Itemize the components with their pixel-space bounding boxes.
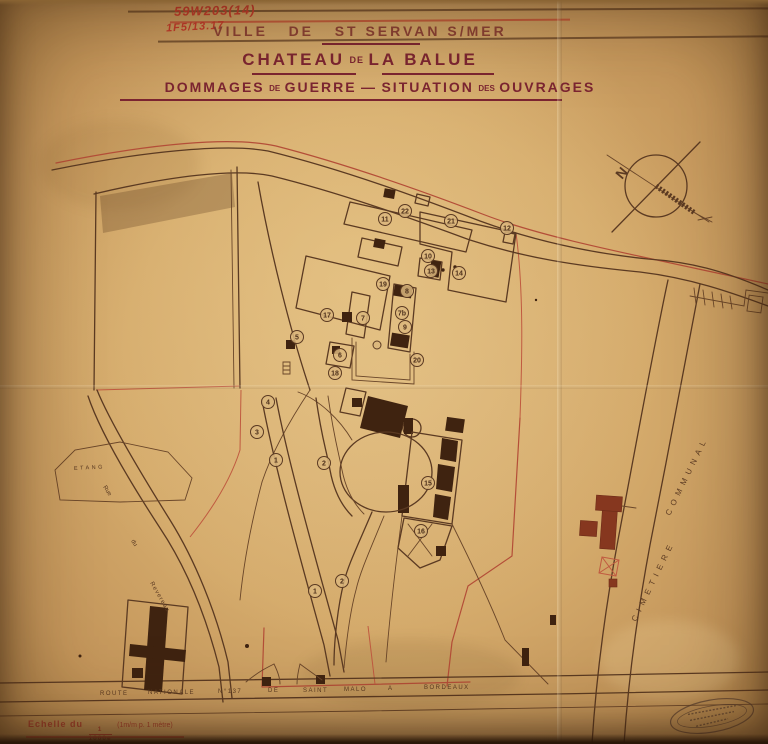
building-15-group — [398, 432, 462, 568]
ouvrage-marker-label: 19 — [379, 281, 387, 288]
route-word-1: NATIONALE — [148, 690, 195, 696]
ouvrage-marker-label: 13 — [427, 268, 435, 275]
photo-edge-top — [0, 0, 768, 5]
shaded-parcel — [100, 173, 235, 233]
central-outbuildings — [283, 256, 416, 384]
ouvrage-marker-label: 15 — [424, 480, 432, 487]
site-plan: N ETANG Rue du Revereau CIMETIERE COMMUN… — [0, 0, 768, 744]
ouvrage-marker-label: 21 — [447, 218, 455, 225]
route-word-0: ROUTE — [100, 691, 129, 697]
rue-label-1: Rue — [101, 485, 112, 498]
route-word-7: BORDEAUX — [424, 685, 470, 691]
archive-stamp — [668, 693, 756, 739]
route-word-2: N°137 — [218, 689, 242, 695]
cimetiere-label: CIMETIERE — [630, 539, 677, 623]
ouvrage-marker-label: 17 — [323, 312, 331, 319]
ouvrage-marker-label: 12 — [503, 225, 511, 232]
ouvrage-marker-label: 10 — [424, 253, 432, 260]
ouvrage-marker-label: 22 — [401, 208, 409, 215]
etang-pond — [55, 442, 192, 502]
ouvrage-marker-label: 8 — [405, 288, 409, 295]
ouvrage-marker-label: 11 — [381, 216, 389, 223]
farm-complex — [122, 600, 188, 694]
ouvrage-marker-label: 3 — [255, 429, 259, 436]
road-lines — [0, 148, 768, 744]
compass-rose: N — [607, 142, 712, 232]
route-word-6: A — [388, 686, 394, 692]
fold-crease-vertical — [557, 0, 562, 744]
ouvrage-marker-label: 14 — [455, 270, 463, 277]
route-word-4: SAINT — [303, 688, 328, 694]
route-word-3: DE — [268, 688, 279, 694]
ouvrage-marker-label: 2 — [322, 460, 326, 467]
route-word-5: MALO — [344, 687, 367, 693]
ouvrage-marker-label: 6 — [338, 352, 342, 359]
scanned-map-document: 59W203(14) 1F5/13.17 VILLE DE ST SERVAN … — [0, 0, 768, 744]
ouvrage-marker-label: 4 — [266, 399, 270, 406]
ouvrage-marker-label: 16 — [417, 528, 425, 535]
entrance-gate — [246, 615, 556, 686]
north-label: N — [612, 164, 631, 182]
etang-label: ETANG — [74, 464, 105, 472]
driveways — [240, 390, 432, 676]
ouvrage-marker-label: 7b — [398, 310, 406, 317]
ouvrage-marker-label: 7 — [361, 315, 365, 322]
photo-edge-bottom — [0, 734, 768, 744]
ouvrage-marker-label: 2 — [340, 578, 344, 585]
cemetery-buildings — [579, 495, 636, 587]
ouvrage-marker-label: 18 — [331, 370, 339, 377]
rue-label-2: du — [129, 539, 138, 548]
ouvrage-marker-label: 5 — [295, 334, 299, 341]
paper-specks — [79, 299, 538, 658]
scale-label: Echelle du — [28, 719, 83, 729]
ouvrage-marker-label: 1 — [274, 457, 278, 464]
chateau-building — [340, 388, 465, 438]
fold-crease-horizontal — [0, 385, 768, 389]
scale-equivalence: (1m/m p. 1 mètre) — [117, 722, 173, 729]
ouvrage-marker-label: 9 — [403, 324, 407, 331]
ouvrage-marker-label: 1 — [313, 588, 317, 595]
communal-label: COMMUNAL — [664, 435, 710, 517]
ouvrage-marker-label: 20 — [413, 357, 421, 364]
